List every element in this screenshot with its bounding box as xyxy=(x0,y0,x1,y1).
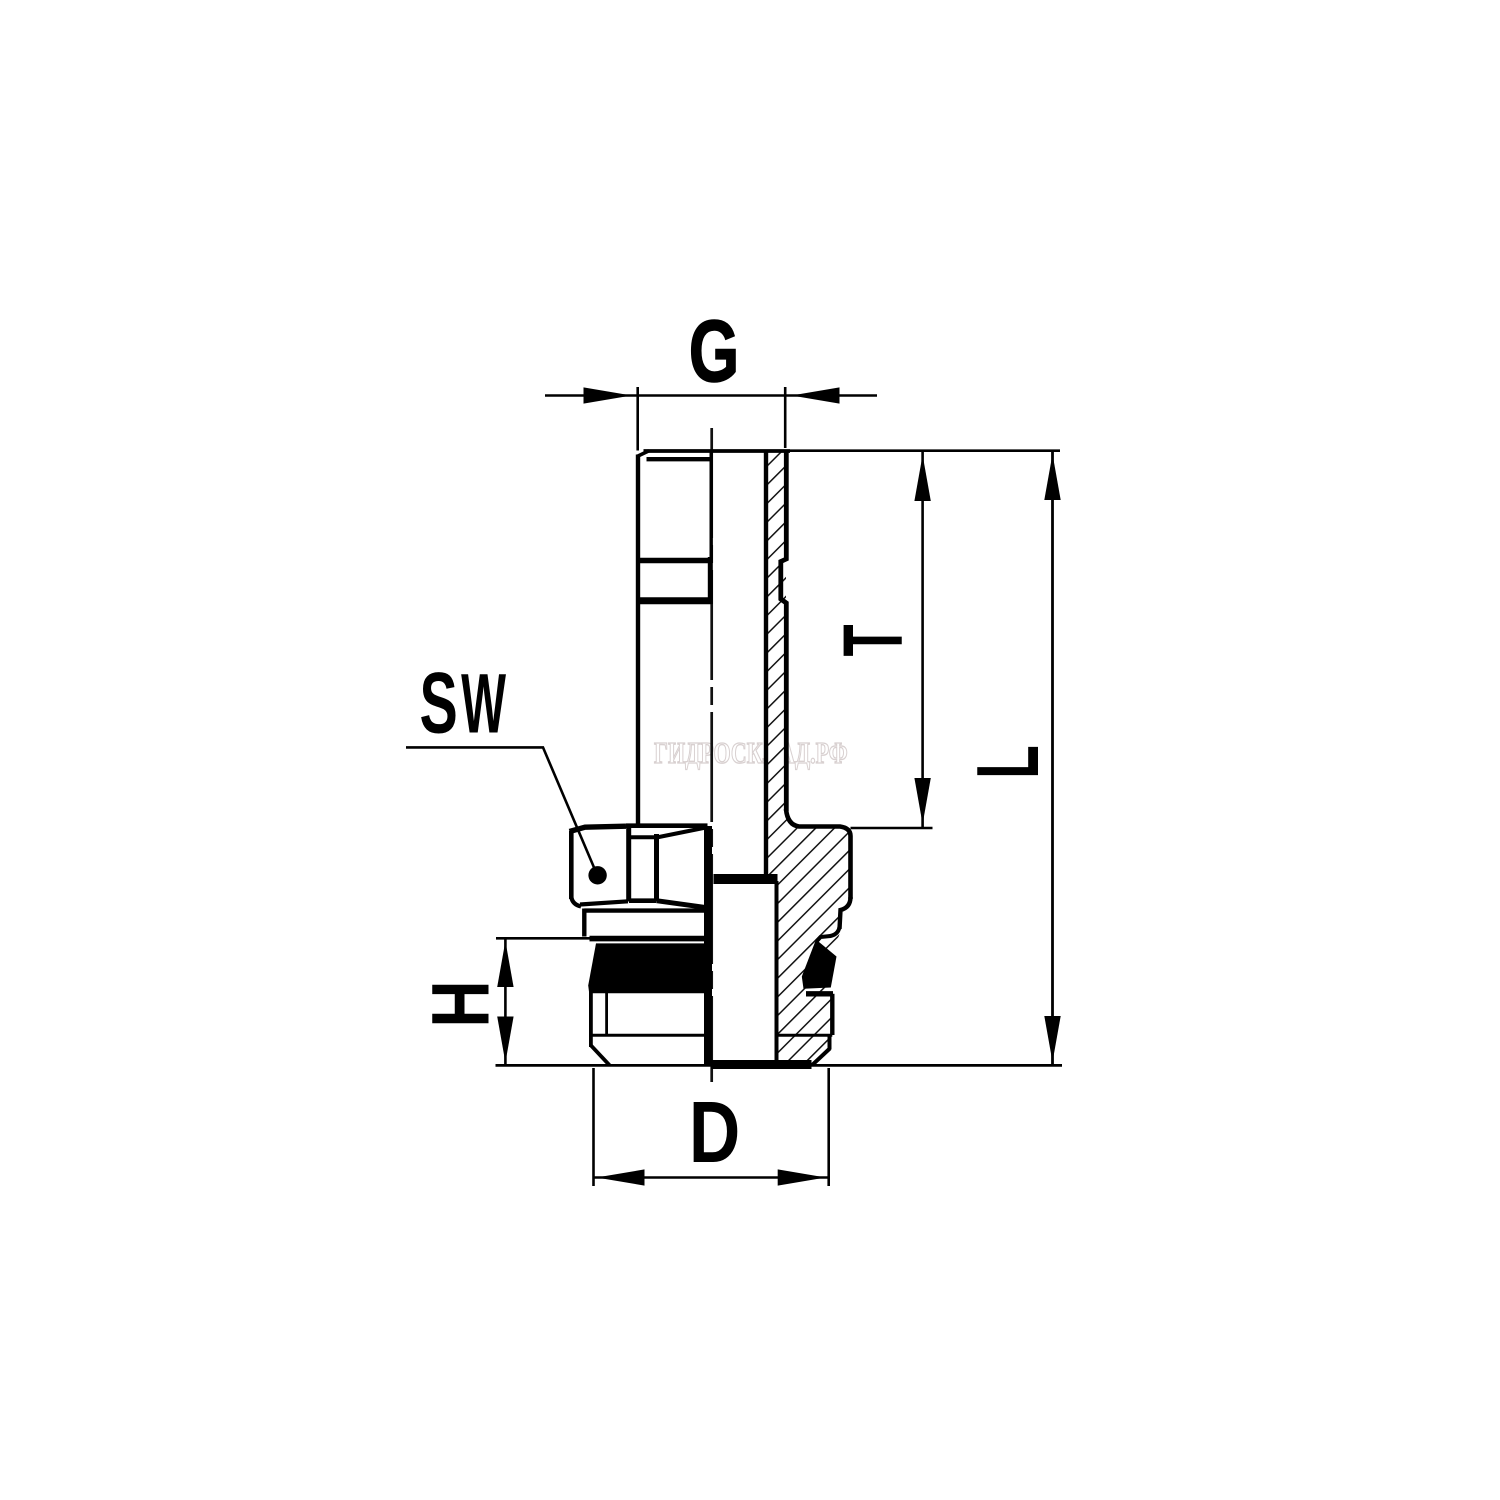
svg-text:G: G xyxy=(689,304,739,400)
svg-text:S: S xyxy=(419,656,457,751)
svg-text:D: D xyxy=(689,1083,740,1180)
svg-text:W: W xyxy=(461,657,506,751)
svg-text:ГИДРОСКЛАД.РФ: ГИДРОСКЛАД.РФ xyxy=(654,735,848,770)
svg-text:L: L xyxy=(959,745,1057,779)
svg-text:H: H xyxy=(414,980,506,1027)
svg-text:T: T xyxy=(826,624,920,656)
